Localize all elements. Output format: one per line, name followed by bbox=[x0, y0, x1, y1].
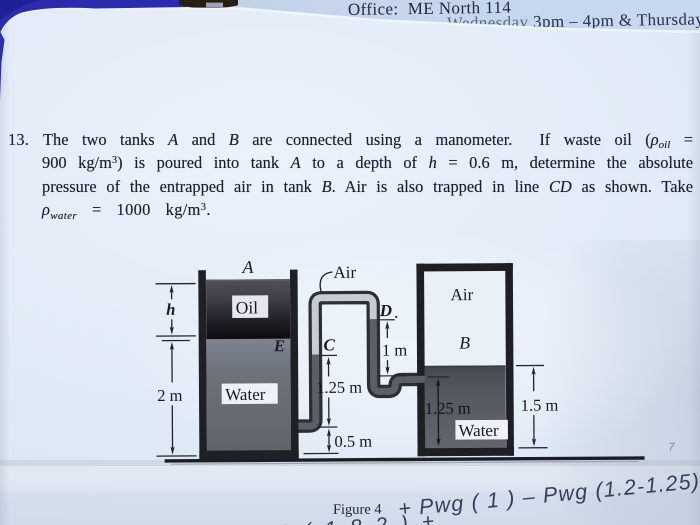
svg-text:Air: Air bbox=[333, 263, 356, 282]
svg-text:A: A bbox=[241, 257, 254, 277]
svg-text:0.5 m: 0.5 m bbox=[334, 432, 372, 451]
svg-text:1 m: 1 m bbox=[382, 340, 407, 359]
svg-text:Water: Water bbox=[458, 421, 499, 440]
svg-text:Oil: Oil bbox=[236, 297, 259, 317]
svg-text:1.5 m: 1.5 m bbox=[521, 396, 559, 415]
svg-text:2 m: 2 m bbox=[157, 386, 182, 405]
svg-text:B: B bbox=[459, 333, 470, 353]
svg-text:1.25 m: 1.25 m bbox=[425, 399, 471, 418]
svg-text:Air: Air bbox=[451, 285, 474, 304]
svg-text:E: E bbox=[273, 336, 285, 355]
svg-text:D: D bbox=[379, 301, 392, 320]
svg-text:Water: Water bbox=[225, 385, 266, 404]
svg-text:C: C bbox=[323, 335, 335, 354]
svg-text:1.25 m: 1.25 m bbox=[316, 378, 362, 397]
svg-text:7: 7 bbox=[669, 441, 676, 453]
svg-text:+ Pwg ( 1 ) – Pwg (1.2-1.25): + Pwg ( 1 ) – Pwg (1.2-1.25) bbox=[397, 469, 700, 521]
svg-text:h: h bbox=[166, 300, 175, 319]
